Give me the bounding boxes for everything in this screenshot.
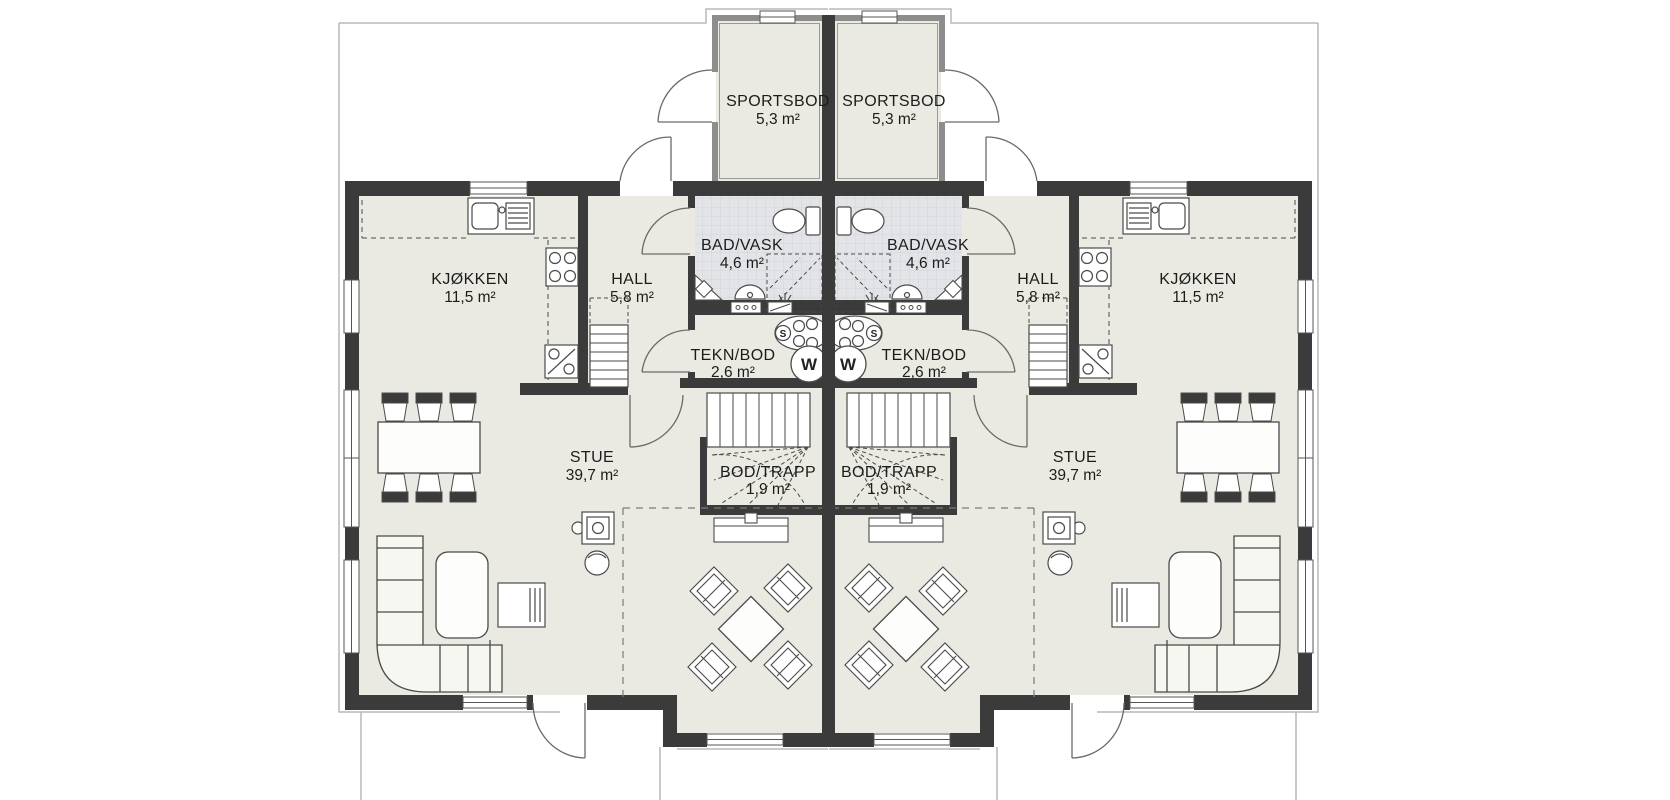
room-area-kjokken-left: 11,5 m²: [444, 289, 495, 306]
room-area-sportsbod-left: 5,3 m²: [756, 111, 800, 128]
room-label-sportsbod-right: SPORTSBOD: [842, 93, 946, 110]
room-area-tekn-left: 2,6 m²: [711, 364, 755, 381]
room-area-sportsbod-right: 5,3 m²: [872, 111, 916, 128]
floor-plan-svg: SPORTSBOD 5,3 m² BAD/VASK 4,6 m² HALL 5,…: [0, 0, 1670, 800]
washer-label-right: W: [840, 355, 857, 374]
room-label-kjokken-right: KJØKKEN: [1159, 271, 1237, 288]
room-label-bodtrapp-left: BOD/TRAPP: [720, 464, 816, 481]
room-label-bad-left: BAD/VASK: [701, 237, 783, 254]
room-label-hall-right: HALL: [1017, 271, 1059, 288]
party-wall: [822, 15, 835, 747]
room-label-stue-left: STUE: [570, 449, 614, 466]
room-label-bodtrapp-right: BOD/TRAPP: [841, 464, 937, 481]
room-label-hall-left: HALL: [611, 271, 653, 288]
room-area-bad-right: 4,6 m²: [906, 255, 950, 272]
room-area-hall-right: 5,8 m²: [1016, 289, 1060, 306]
room-area-tekn-right: 2,6 m²: [902, 364, 946, 381]
room-area-bodtrapp-left: 1,9 m²: [746, 481, 790, 498]
room-area-hall-left: 5,8 m²: [610, 289, 654, 306]
room-area-kjokken-right: 11,5 m²: [1172, 289, 1223, 306]
room-label-stue-right: STUE: [1053, 449, 1097, 466]
room-label-kjokken-left: KJØKKEN: [431, 271, 509, 288]
room-area-stue-left: 39,7 m²: [566, 467, 619, 484]
room-area-bodtrapp-right: 1,9 m²: [867, 481, 911, 498]
room-area-bad-left: 4,6 m²: [720, 255, 764, 272]
room-label-tekn-right: TEKN/BOD: [882, 347, 967, 364]
room-label-sportsbod-left: SPORTSBOD: [726, 93, 830, 110]
room-area-stue-right: 39,7 m²: [1049, 467, 1102, 484]
pipe-cabinet-label-left: S: [780, 329, 787, 340]
room-label-tekn-left: TEKN/BOD: [691, 347, 776, 364]
room-label-bad-right: BAD/VASK: [887, 237, 969, 254]
washer-label-left: W: [801, 355, 818, 374]
floor-plan-canvas: SPORTSBOD 5,3 m² BAD/VASK 4,6 m² HALL 5,…: [0, 0, 1670, 800]
pipe-cabinet-label-right: S: [871, 329, 878, 340]
